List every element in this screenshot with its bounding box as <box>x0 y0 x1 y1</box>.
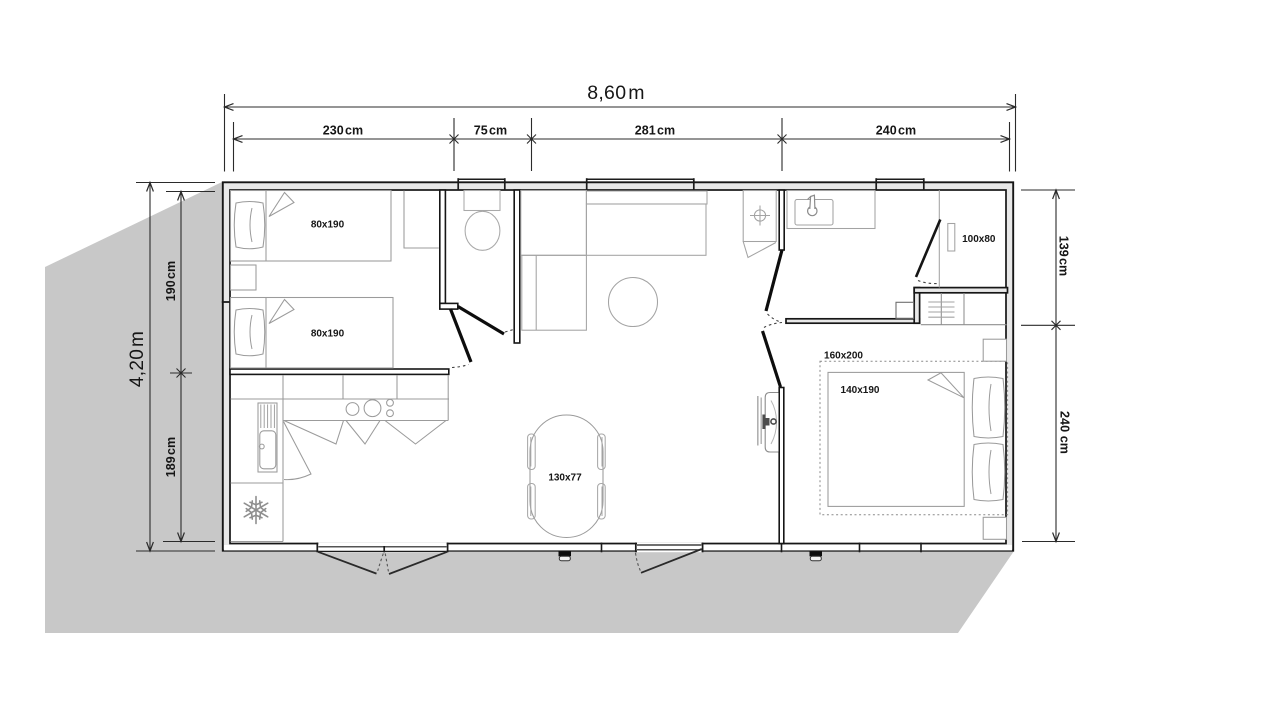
svg-text:130x77: 130x77 <box>548 473 582 484</box>
svg-text:100x80: 100x80 <box>962 234 996 245</box>
svg-text:240 cm: 240 cm <box>876 124 917 138</box>
svg-text:140x190: 140x190 <box>841 385 880 396</box>
svg-text:80x190: 80x190 <box>311 329 345 340</box>
svg-text:4,20 m: 4,20 m <box>127 331 148 387</box>
svg-text:80x190: 80x190 <box>311 220 345 231</box>
svg-text:8,60 m: 8,60 m <box>587 82 645 104</box>
svg-text:240 cm: 240 cm <box>1057 411 1071 454</box>
svg-text:139 cm: 139 cm <box>1057 236 1071 277</box>
svg-text:190 cm: 190 cm <box>164 261 178 302</box>
svg-text:189 cm: 189 cm <box>164 437 178 478</box>
svg-text:230 cm: 230 cm <box>323 124 364 138</box>
svg-text:160x200: 160x200 <box>824 350 863 361</box>
svg-text:75 cm: 75 cm <box>474 124 508 138</box>
svg-text:281 cm: 281 cm <box>635 124 676 138</box>
